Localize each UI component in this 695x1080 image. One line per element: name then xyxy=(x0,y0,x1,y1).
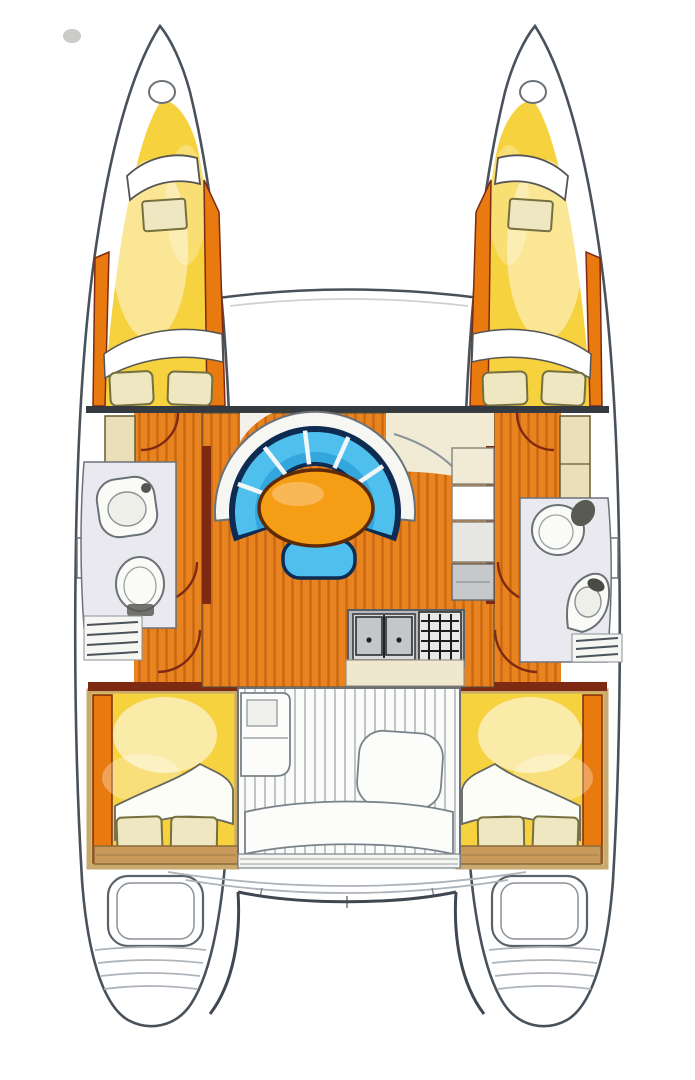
toilet xyxy=(116,557,164,611)
faucet xyxy=(141,483,151,493)
table-highlight xyxy=(272,482,324,506)
nav-cabinets xyxy=(452,448,494,600)
main-bulkhead xyxy=(86,406,609,413)
salon-table xyxy=(259,470,373,546)
traveller-track xyxy=(238,854,460,868)
boat-floorplan xyxy=(0,0,695,1080)
module-inset xyxy=(247,700,277,726)
sink-left xyxy=(356,617,382,655)
sink-basin xyxy=(108,492,146,526)
toilet-base xyxy=(127,604,154,616)
salon-wall-port xyxy=(202,446,211,604)
sink-right xyxy=(386,617,412,655)
floorplan-svg xyxy=(0,0,695,1080)
galley-counter xyxy=(346,660,464,686)
helm-seat xyxy=(355,729,444,811)
stove xyxy=(419,612,461,662)
drain-right xyxy=(396,637,401,642)
shower-grate xyxy=(84,616,142,660)
salon xyxy=(202,412,495,687)
shower-grate xyxy=(572,634,622,662)
cockpit xyxy=(238,688,460,868)
starboard-head xyxy=(520,495,622,662)
artifact-smudge xyxy=(63,29,81,43)
drain-left xyxy=(366,637,371,642)
galley xyxy=(346,610,464,686)
